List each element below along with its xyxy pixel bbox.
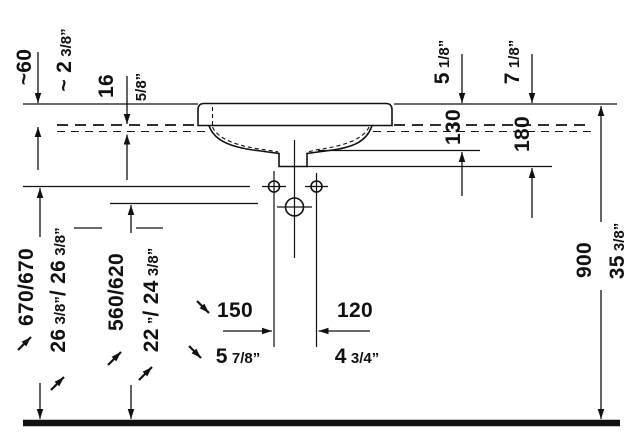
dim-16-group: 16 5/8” [95, 73, 150, 180]
dim-900-group: 900 35 3/8” [573, 106, 629, 419]
basin-bowl-outline [209, 126, 372, 167]
dim-120-inch-label: 4 3/4” [335, 345, 380, 368]
dim-130-inch-label: 5 1/8” [431, 40, 454, 85]
dim-180-inch-label: 7 1/8” [501, 40, 524, 85]
adjustable-arrow-icon [189, 346, 201, 358]
adjustable-arrow-icon [197, 301, 209, 313]
adjustable-arrow-icon [139, 367, 152, 380]
dim-130-group: 5 1/8” 130 [318, 40, 480, 196]
dim-60-mm-label: ~60 [13, 49, 36, 86]
dim-60-inch-label: ~ 2 3/8” [53, 28, 76, 91]
dim-130-mm-label: 130 [442, 109, 465, 145]
dim-60-group: ~60 ~ 2 3/8” [13, 28, 76, 170]
bowl-hidden-edge-right [309, 127, 370, 152]
dim-900-inch-label: 35 3/8” [606, 223, 629, 280]
dim-180-mm-label: 180 [511, 116, 534, 152]
dim-16-mm-label: 16 [95, 74, 118, 98]
dim-120-mm-label: 120 [337, 299, 373, 322]
adjustable-arrow-icon [18, 337, 31, 350]
dim-670-group: 670/670 26 3/8”/ 26 3/8” [15, 187, 250, 420]
adjustable-arrow-icon [51, 377, 64, 390]
dim-150-group: 150 5 7/8” [189, 299, 272, 368]
dim-180-group: 7 1/8” 180 [307, 40, 552, 218]
dim-120-group: 120 4 3/4” [319, 299, 380, 368]
basin-rim-outline [198, 104, 392, 126]
dim-670-mm-label: 670/670 [15, 248, 38, 326]
dim-150-mm-label: 150 [217, 299, 253, 322]
installation-diagram: ~60 ~ 2 3/8” 16 5/8” 5 1/8” 130 7 1/8” 1… [0, 0, 640, 447]
installation-diagram-page: ~60 ~ 2 3/8” 16 5/8” 5 1/8” 130 7 1/8” 1… [0, 0, 640, 447]
dim-560-inch-label: 22 ”/ 24 3/8” [140, 248, 163, 352]
adjustable-arrow-icon [108, 352, 121, 365]
dim-900-mm-label: 900 [573, 242, 596, 278]
dim-670-inch-label: 26 3/8”/ 26 3/8” [47, 227, 70, 352]
dim-560-mm-label: 560/620 [105, 253, 128, 331]
dim-150-inch-label: 5 7/8” [216, 345, 261, 368]
dim-16-inch-label: 5/8” [133, 73, 150, 101]
